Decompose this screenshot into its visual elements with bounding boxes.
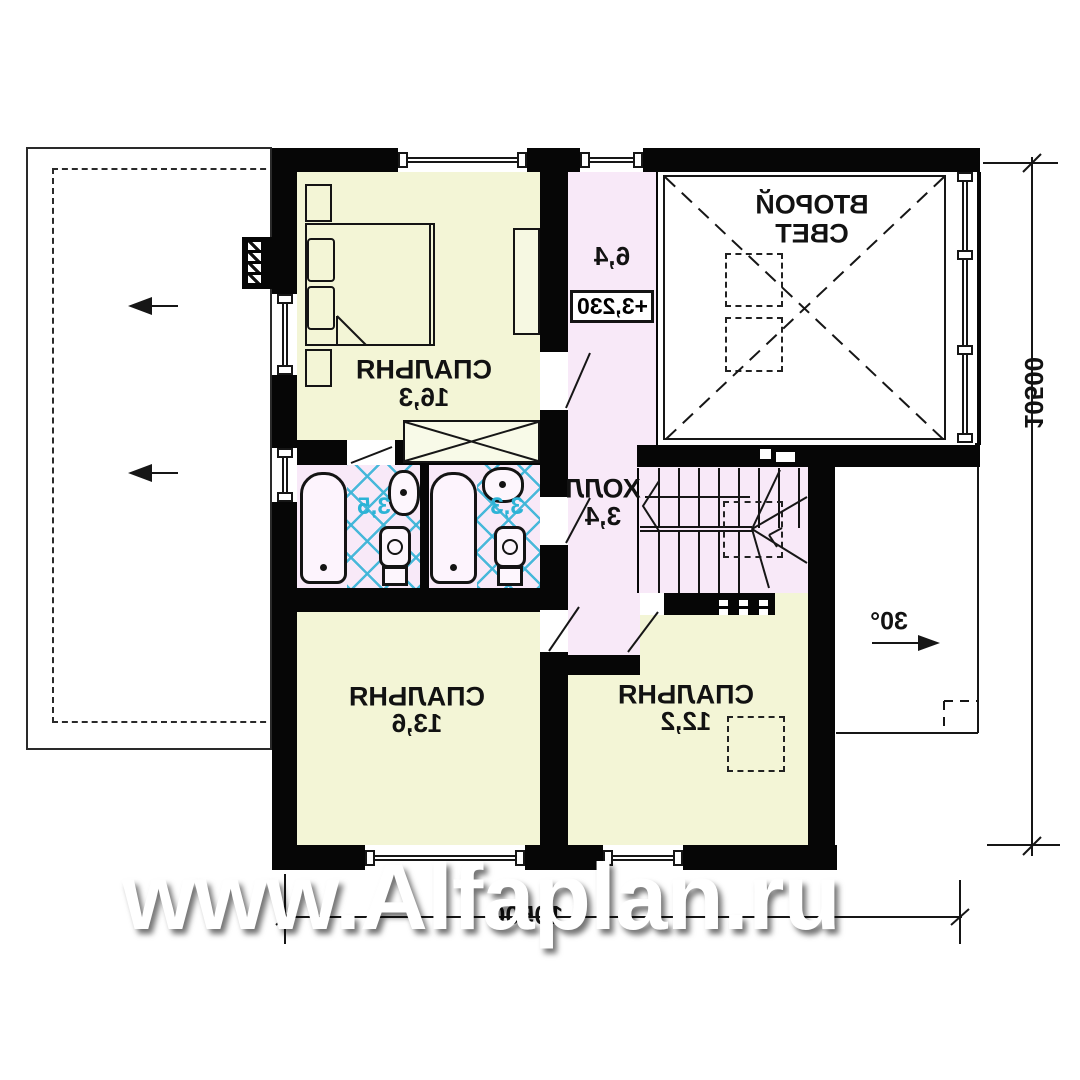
bedroom-bottom-left-area: 13,6	[392, 710, 443, 736]
window-glass	[282, 454, 288, 496]
chimney-flue-3	[248, 264, 261, 272]
corridor-opening-floor	[568, 445, 637, 467]
sink-left	[388, 470, 420, 516]
wall-bottom	[272, 845, 837, 870]
dimension-line-bottom	[276, 874, 969, 944]
vent-duct	[776, 452, 795, 462]
door-gap-bedroom-bm	[640, 593, 664, 615]
bedroom-bottom-left-label: СПАЛЬНЯ	[349, 684, 485, 711]
level-mark-box: +3,230	[570, 290, 654, 323]
vent-duct	[739, 600, 748, 606]
roof-slope-arrow-right	[872, 635, 940, 651]
bathtub-right	[430, 472, 477, 584]
secondlight-left-line	[656, 172, 658, 445]
window-glass	[371, 855, 519, 861]
chimney-flue-4	[248, 275, 261, 283]
window-bottom-a	[365, 845, 525, 870]
corridor-end-floor	[568, 593, 640, 655]
wall-bath-divider	[420, 465, 429, 588]
wall-stair-right	[808, 445, 835, 845]
bedroom-top-label: СПАЛЬНЯ	[356, 357, 492, 384]
bathroom-right-area: 3,3	[490, 495, 523, 519]
hall-area: 3,4	[585, 503, 621, 529]
bathtub-left	[300, 472, 347, 584]
nightstand	[305, 184, 332, 222]
vent-duct	[759, 609, 768, 615]
window-bottom-b	[603, 845, 683, 870]
chimney-flue-1	[248, 242, 261, 250]
toilet-right-bowl	[494, 526, 526, 568]
wall-corridor-stub	[568, 655, 640, 675]
window-left-b	[272, 448, 297, 502]
vent-duct	[719, 609, 728, 615]
door-gap-bedroom-bl	[540, 610, 568, 652]
bed-pillow	[307, 286, 335, 330]
level-mark-text: +3,230	[577, 293, 648, 320]
wall-left	[272, 148, 297, 870]
secondlight-dashed-box-2	[725, 317, 783, 372]
window-right-tall	[953, 172, 977, 443]
bed-pillow	[307, 238, 335, 282]
toilet-right-tank	[497, 566, 523, 586]
window-top-a	[398, 148, 527, 172]
bedroom-bottom-mid-label: СПАЛЬНЯ	[618, 682, 754, 709]
bedroom-bottom-mid-area: 12,2	[661, 708, 712, 734]
dimension-right-value: 10500	[1021, 357, 1047, 429]
secondlight-dashed-box-1	[725, 253, 783, 307]
window-glass	[282, 300, 288, 369]
vent-duct	[739, 609, 748, 615]
secondlight-label-line1: ВТОРОЙ	[755, 192, 868, 219]
wall-bath-bottom	[297, 588, 568, 612]
window-glass	[609, 855, 677, 861]
stair-dashed-duct	[723, 501, 783, 558]
door-gap-bath-right	[540, 497, 568, 545]
floor-plan-canvas: СПАЛЬНЯ 16,3 СПАЛЬНЯ 13,6 СПАЛЬНЯ 12,2 Х…	[0, 0, 1080, 1080]
window-glass	[404, 157, 521, 163]
hall-label: ХОЛЛ	[565, 476, 641, 503]
bedroom-top-area: 16,3	[399, 384, 450, 410]
window-top-b	[580, 148, 643, 172]
bathroom-left-area: 3,5	[357, 495, 390, 519]
closet-built-in	[403, 420, 540, 463]
chimney-flue-2	[248, 253, 261, 261]
toilet-left-bowl	[379, 526, 411, 568]
wardrobe	[513, 228, 540, 335]
door-gap-bath-left	[347, 440, 395, 465]
bedroom-mid-dashed-box	[727, 716, 785, 772]
window-left-a	[272, 294, 297, 375]
bedroom-bottom-mid-floor-3	[775, 593, 808, 615]
roof-slope-label: 30°	[870, 610, 908, 635]
dimension-bottom-value: 10500	[491, 902, 563, 928]
vent-duct	[760, 449, 771, 459]
corridor-area: 6,4	[594, 243, 630, 269]
window-glass	[962, 178, 968, 437]
nightstand	[305, 349, 332, 387]
vent-duct	[719, 600, 728, 606]
secondlight-label-line2: СВЕТ	[775, 221, 849, 248]
dimension-line-right	[983, 154, 1060, 856]
window-glass	[586, 157, 637, 163]
door-gap-bedroom-top	[540, 352, 568, 410]
toilet-left-tank	[382, 566, 408, 586]
vent-duct	[759, 600, 768, 606]
